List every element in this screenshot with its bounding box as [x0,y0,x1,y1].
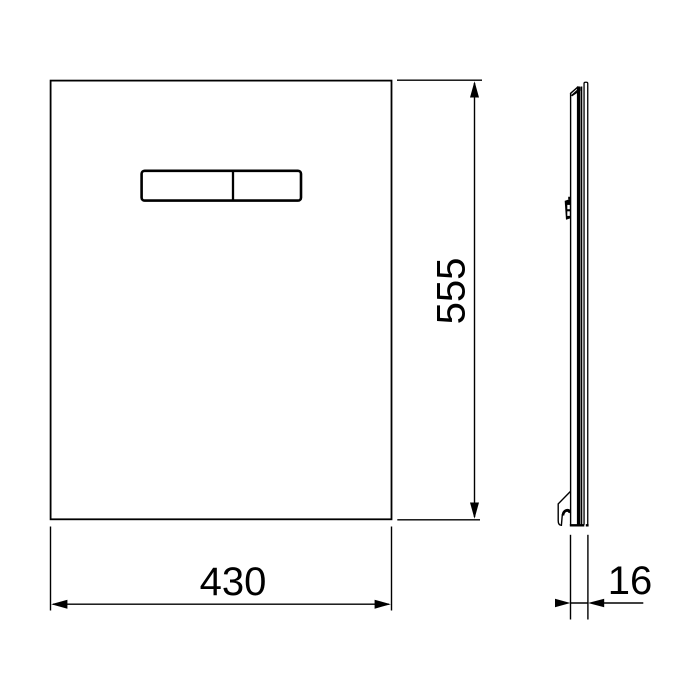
svg-text:16: 16 [608,559,653,603]
svg-text:430: 430 [200,560,267,604]
svg-text:555: 555 [429,258,473,325]
